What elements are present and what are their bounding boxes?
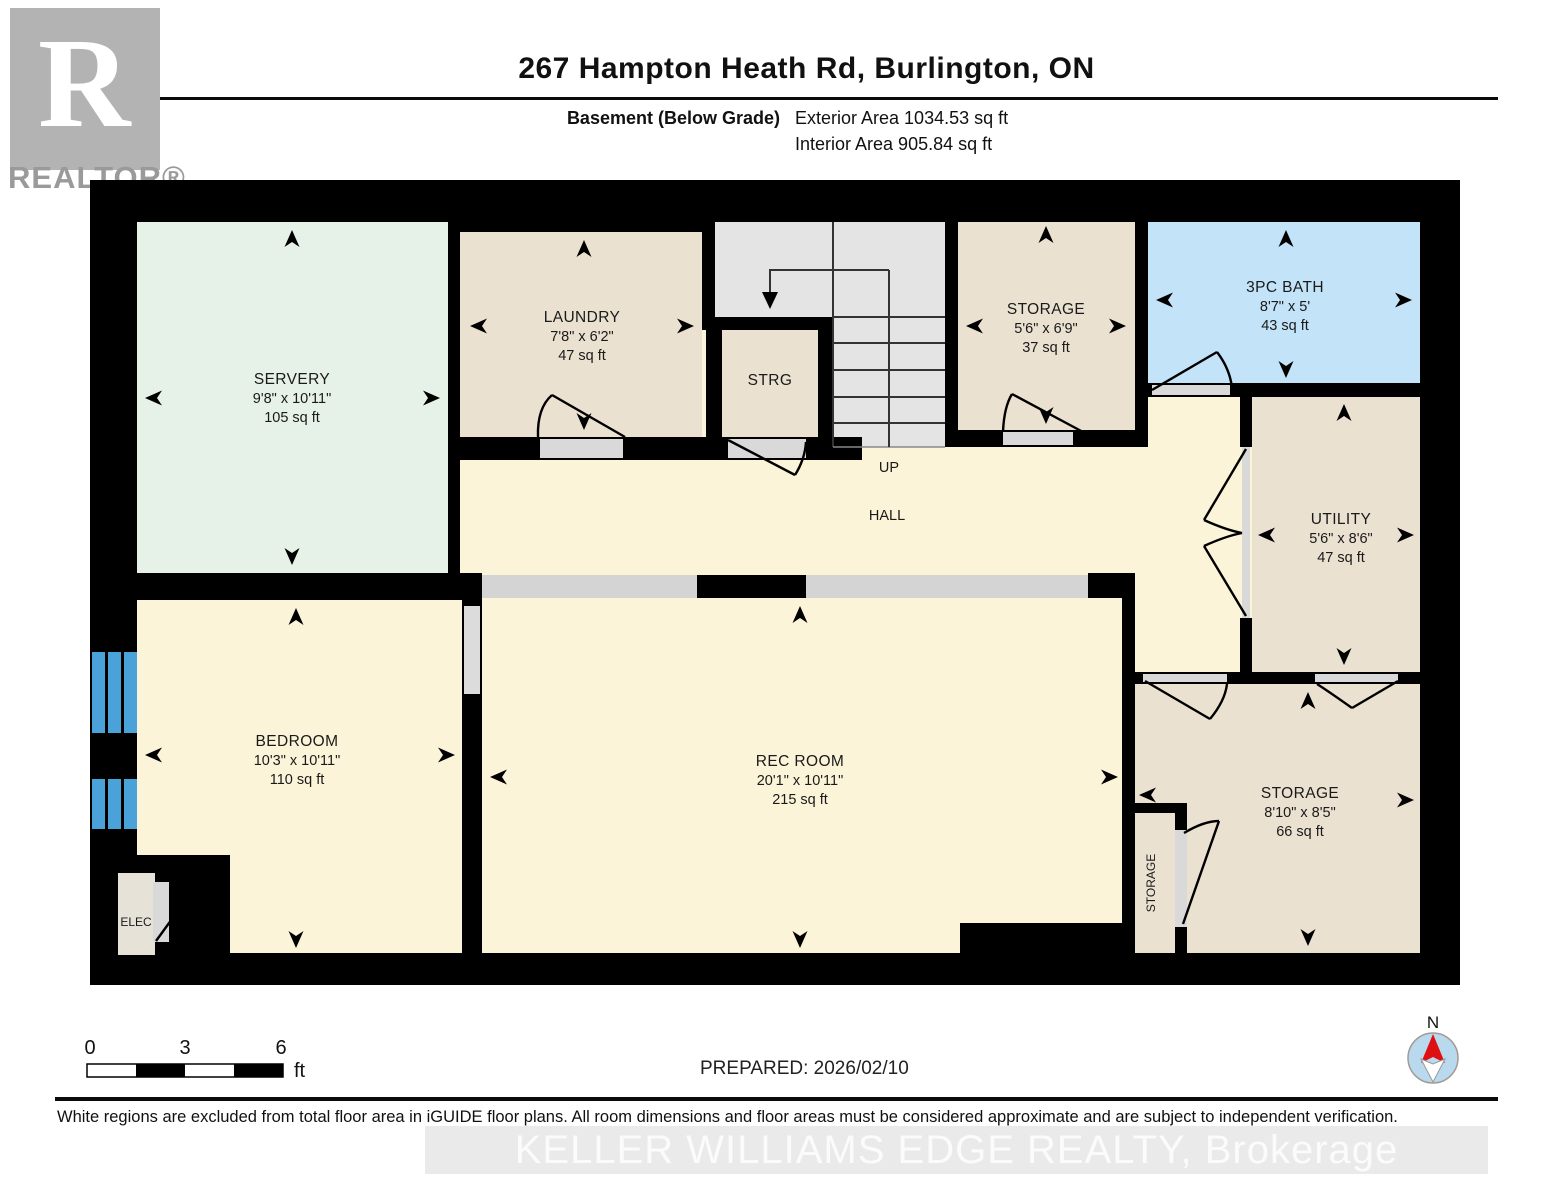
svg-text:47 sq ft: 47 sq ft bbox=[1317, 550, 1365, 566]
svg-text:20'1" x 10'11": 20'1" x 10'11" bbox=[757, 773, 844, 789]
svg-text:215 sq ft: 215 sq ft bbox=[772, 792, 828, 808]
footer-divider bbox=[55, 1097, 1498, 1101]
label-storage-top: STORAGE bbox=[1007, 301, 1085, 318]
svg-text:47 sq ft: 47 sq ft bbox=[558, 348, 606, 364]
label-bedroom: BEDROOM bbox=[256, 733, 339, 750]
disclaimer-text: White regions are excluded from total fl… bbox=[57, 1108, 1507, 1127]
svg-text:105 sq ft: 105 sq ft bbox=[264, 410, 320, 426]
label-storage-closet: STORAGE bbox=[1144, 854, 1158, 912]
label-strg: STRG bbox=[748, 372, 793, 389]
scale-unit: ft bbox=[294, 1060, 306, 1082]
half-wall bbox=[806, 575, 1088, 598]
compass-north-label: N bbox=[1427, 1013, 1439, 1032]
scale-tick-3: 3 bbox=[179, 1037, 190, 1059]
door-sill-laundry bbox=[540, 439, 623, 458]
label-servery: SERVERY bbox=[254, 371, 330, 388]
svg-text:5'6" x 8'6": 5'6" x 8'6" bbox=[1309, 531, 1372, 547]
wall-opening-bedroom bbox=[464, 606, 480, 694]
svg-text:7'8" x 6'2": 7'8" x 6'2" bbox=[550, 329, 613, 345]
label-hall: HALL bbox=[869, 508, 905, 524]
svg-text:110 sq ft: 110 sq ft bbox=[270, 772, 325, 788]
door-sill-storage-top bbox=[1003, 432, 1073, 445]
svg-text:8'10" x 8'5": 8'10" x 8'5" bbox=[1264, 805, 1335, 821]
svg-text:9'8" x 10'11": 9'8" x 10'11" bbox=[253, 391, 331, 407]
window-bar bbox=[124, 652, 137, 733]
label-laundry: LAUNDRY bbox=[544, 309, 621, 326]
svg-text:10'3" x 10'11": 10'3" x 10'11" bbox=[254, 753, 341, 769]
half-wall bbox=[482, 575, 697, 598]
window-bar bbox=[92, 779, 105, 829]
room-elec bbox=[118, 873, 155, 955]
door-sill-bath bbox=[1152, 385, 1230, 395]
door-sill-utility bbox=[1242, 447, 1250, 618]
label-up: UP bbox=[879, 460, 899, 476]
door-sill-closet bbox=[1175, 830, 1187, 927]
door-sill-storage-b bbox=[1315, 674, 1398, 682]
svg-text:5'6" x 6'9": 5'6" x 6'9" bbox=[1014, 321, 1077, 337]
door-sill-storage-a bbox=[1143, 674, 1227, 682]
scale-bar: 0 3 6 ft bbox=[84, 1037, 305, 1082]
label-utility: UTILITY bbox=[1311, 511, 1372, 528]
floor-plan-drawing: SERVERY 9'8" x 10'11" 105 sq ft LAUNDRY … bbox=[0, 0, 1553, 1200]
label-storage-bottom: STORAGE bbox=[1261, 785, 1339, 802]
label-bath: 3PC BATH bbox=[1246, 279, 1324, 296]
window-bar bbox=[124, 779, 137, 829]
svg-text:43 sq ft: 43 sq ft bbox=[1261, 318, 1309, 334]
svg-text:37 sq ft: 37 sq ft bbox=[1022, 340, 1070, 356]
svg-text:8'7" x 5': 8'7" x 5' bbox=[1260, 299, 1310, 315]
window-bar bbox=[92, 652, 105, 733]
label-rec-room: REC ROOM bbox=[756, 753, 844, 770]
door-sill-strg bbox=[728, 439, 806, 458]
svg-text:66 sq ft: 66 sq ft bbox=[1276, 824, 1324, 840]
window-bar bbox=[108, 652, 121, 733]
compass-icon: N bbox=[1408, 1013, 1458, 1083]
label-elec: ELEC bbox=[120, 915, 152, 929]
scale-tick-0: 0 bbox=[84, 1037, 95, 1059]
window-bar bbox=[108, 779, 121, 829]
floor-plan-page: 267 Hampton Heath Rd, Burlington, ON Bas… bbox=[0, 0, 1553, 1200]
scale-tick-6: 6 bbox=[275, 1037, 286, 1059]
